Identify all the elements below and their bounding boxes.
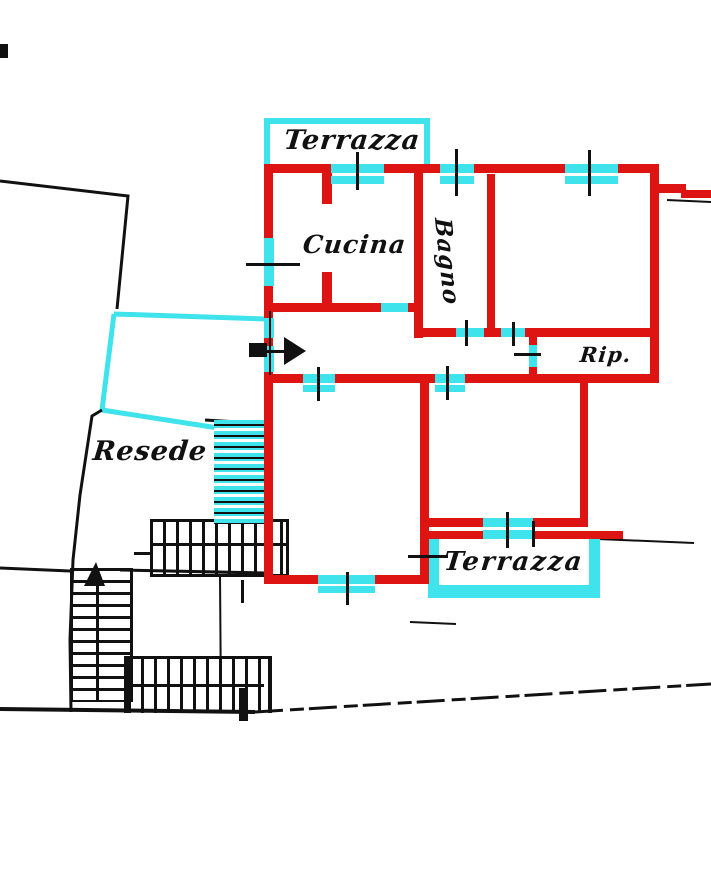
entrance-arrow-icon bbox=[284, 337, 306, 365]
bottom-boundary-right bbox=[255, 684, 711, 712]
cucina-bottom-wall-end bbox=[408, 303, 418, 312]
label-resede: Resede bbox=[91, 436, 208, 467]
rip-left-wall-bottom bbox=[529, 365, 537, 383]
left-staircase-mid-rail bbox=[96, 568, 99, 702]
tick-window-top-3 bbox=[588, 150, 591, 196]
mid-wall bbox=[414, 328, 658, 337]
tick-bagno-door bbox=[465, 320, 468, 346]
property-boundary-upper bbox=[0, 181, 128, 309]
room-b-right-wall bbox=[580, 383, 588, 527]
short-line-below-plan bbox=[410, 622, 456, 624]
rip-door bbox=[529, 345, 537, 367]
stair-direction-arrow-icon bbox=[84, 562, 105, 586]
tick-bedroom-door bbox=[512, 322, 515, 346]
cucina-door bbox=[381, 303, 408, 312]
tick-terrace-left bbox=[408, 555, 448, 558]
label-cucina: Cucina bbox=[301, 230, 407, 259]
bagno-right-wall bbox=[487, 174, 495, 336]
bottom-staircase-arrow-mark bbox=[239, 688, 248, 721]
window-left-wall bbox=[264, 238, 274, 286]
cucina-stub-bottom bbox=[322, 272, 332, 306]
tick-window-top-1 bbox=[356, 152, 359, 190]
label-terrazza-top: Terrazza bbox=[282, 125, 422, 156]
tick-hall-opening-1 bbox=[317, 367, 320, 401]
boundary-stub-left bbox=[0, 568, 70, 571]
resede-boundary-cyan-top bbox=[114, 314, 266, 319]
window-top-3-outer bbox=[565, 164, 618, 173]
bagno-left-wall bbox=[414, 168, 423, 338]
upper-staircase-stub bbox=[134, 552, 152, 555]
tick-entrance-door bbox=[269, 311, 271, 375]
tick-window-left bbox=[246, 263, 300, 266]
hall-opening-2-outer bbox=[435, 374, 465, 383]
tick-terrace-corner bbox=[532, 521, 535, 547]
lower-room-divider-wall bbox=[420, 383, 429, 583]
resede-boundary-cyan-left bbox=[102, 314, 114, 410]
top-right-exit-wall bbox=[681, 190, 711, 198]
bottom-staircase-mid-rail bbox=[124, 684, 264, 687]
highlighted-staircase bbox=[214, 420, 270, 524]
tick-window-top-2 bbox=[455, 149, 458, 196]
line-right-of-terrace bbox=[598, 539, 694, 543]
entrance-arrow-shaft bbox=[249, 350, 289, 353]
tick-rip-door bbox=[514, 353, 541, 356]
hall-opening-2-inner bbox=[435, 385, 465, 392]
resede-boundary-cyan-bottom bbox=[102, 410, 218, 428]
bagno-door bbox=[456, 328, 484, 337]
tick-hall-opening-2 bbox=[446, 366, 449, 400]
tick-below-plan bbox=[241, 580, 244, 603]
outer-right-wall bbox=[650, 164, 659, 383]
floor-plan-canvas: Terrazza Cucina Bagno Rip. Resede Terraz… bbox=[0, 0, 711, 894]
label-terrazza-bottom: Terrazza bbox=[442, 547, 585, 577]
tick-room-a-window bbox=[346, 572, 349, 605]
window-top-3-inner bbox=[565, 176, 618, 184]
scan-mark bbox=[0, 44, 8, 58]
label-rip: Rip. bbox=[579, 342, 633, 367]
line-top-right-exit bbox=[667, 200, 711, 202]
tick-room-b-window bbox=[506, 512, 509, 548]
